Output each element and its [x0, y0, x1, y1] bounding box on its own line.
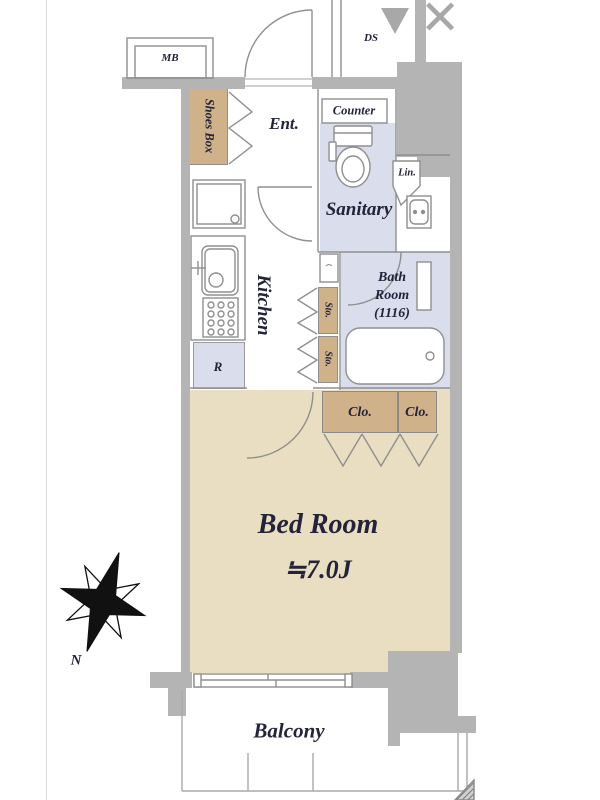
storage2-zigzag — [298, 337, 317, 383]
shoes-box-door-zigzag — [229, 92, 252, 164]
kitchen-counter — [191, 236, 245, 340]
wall-stub-bl-h — [150, 672, 192, 688]
stove-icon — [203, 298, 238, 337]
ds-room-outline — [332, 0, 341, 77]
entrance-door — [245, 10, 312, 86]
kitchen-label: Kitchen — [252, 274, 274, 335]
washing-machine-pan — [193, 180, 245, 228]
refrigerator-label: R — [214, 359, 223, 375]
bath-label-2: Room — [375, 288, 409, 304]
sanitary-label: Sanitary — [326, 199, 393, 221]
wall-block-bottom-right — [388, 651, 458, 733]
wall-stub-bl-v — [168, 688, 186, 716]
balcony-label: Balcony — [253, 719, 324, 744]
wall-left — [181, 85, 190, 688]
bath-label-1: Bath — [378, 270, 406, 286]
sanitary-area — [320, 123, 396, 252]
bedroom-window — [194, 674, 352, 687]
wall-top-right — [312, 77, 402, 89]
ds-label: DS — [364, 32, 378, 44]
closet2-label: Clo. — [405, 405, 429, 421]
counter-label: Counter — [333, 104, 375, 119]
bedroom-area-lower — [190, 651, 388, 673]
collapse-triangle-icon[interactable] — [381, 8, 409, 34]
shoes-box-label: Shoes Box — [202, 99, 217, 154]
storage1-zigzag — [298, 288, 317, 334]
page-edge-line — [46, 0, 47, 800]
closet1-label: Clo. — [348, 405, 372, 421]
wall-stub-br — [388, 733, 400, 746]
compass-icon — [32, 531, 175, 674]
hatch-triangle — [455, 780, 474, 800]
kitchen-sink — [202, 246, 238, 295]
close-icon[interactable]: ✕ — [420, 0, 460, 42]
wall-right — [450, 157, 462, 653]
linen-label: Lin. — [398, 168, 416, 179]
bedroom-label: Bed Room — [258, 509, 379, 541]
entrance-label: Ent. — [269, 114, 299, 134]
small-fixture-box — [320, 254, 338, 282]
storage1-label: Sto. — [323, 302, 334, 318]
compass-north-label: N — [71, 653, 82, 670]
kitchen-door — [258, 187, 312, 241]
mb-label: MB — [161, 52, 178, 64]
wall-protrusion — [458, 716, 476, 733]
bedroom-size-label: ≒7.0J — [284, 555, 351, 585]
wall-block-top-right — [397, 62, 462, 157]
bath-label-3: (1116) — [374, 306, 410, 322]
storage2-label: Sto. — [323, 351, 334, 367]
floorplan: ✕ — [0, 0, 600, 800]
washbasin-icon — [407, 196, 431, 228]
wall-bottom-mid — [350, 672, 388, 688]
